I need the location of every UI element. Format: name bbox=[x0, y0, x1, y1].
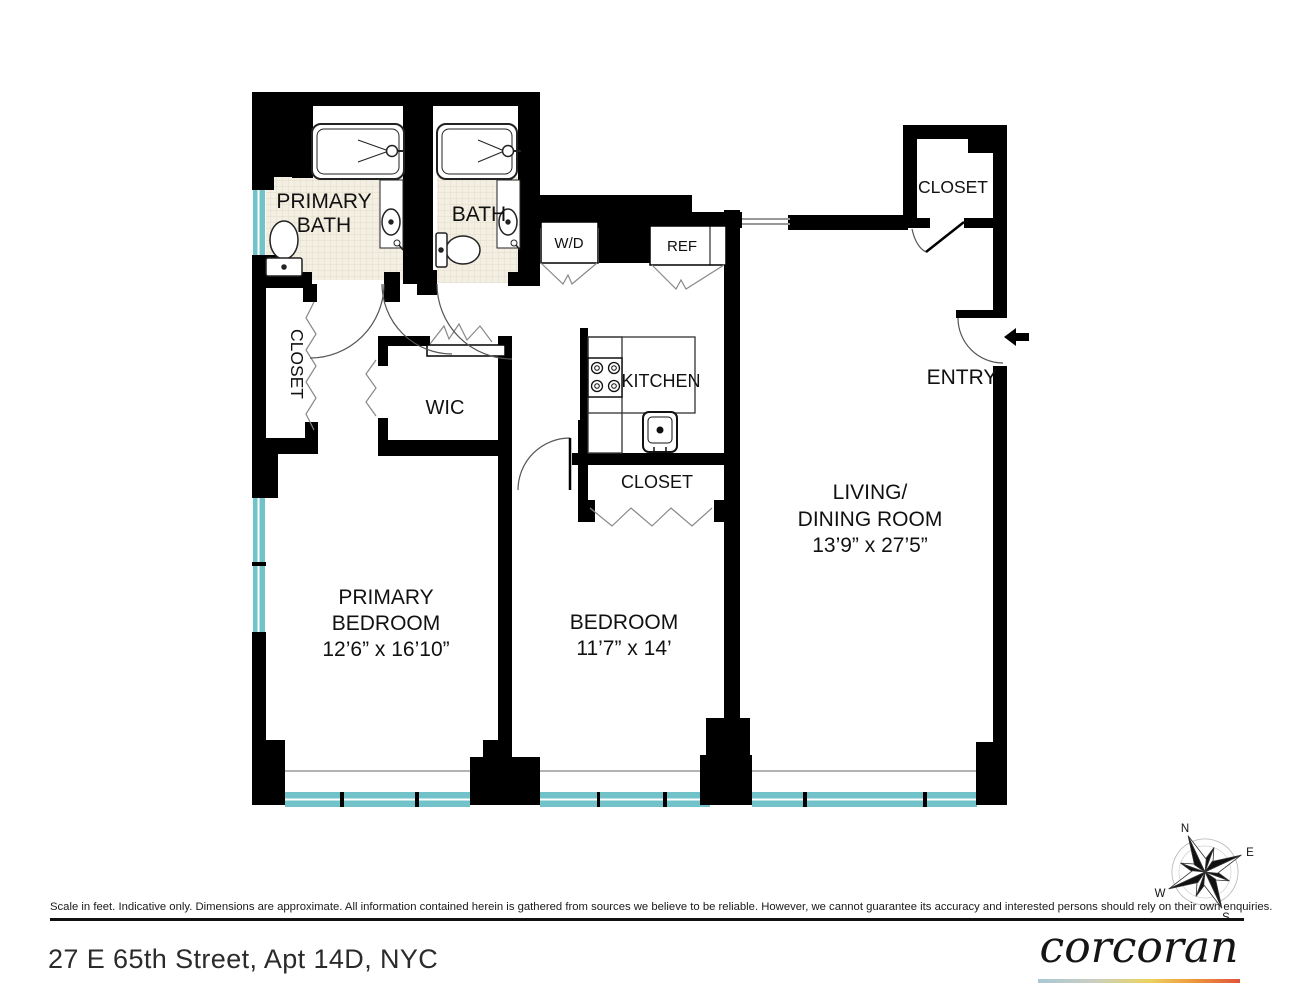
room-dims-bedroom: 11’7” x 14’ bbox=[576, 637, 671, 660]
room-dims-primary-bedroom: 12’6” x 16’10” bbox=[322, 638, 449, 661]
floorplan-svg: PRIMARY BATH BATH W/D REF CLOSET ENTRY K… bbox=[0, 0, 1294, 1000]
brand-wordmark: corcoran bbox=[1036, 926, 1242, 970]
stove bbox=[588, 358, 622, 397]
wic-closet-rod bbox=[427, 345, 505, 356]
address-text: 27 E 65th Street, Apt 14D, NYC bbox=[48, 944, 438, 975]
room-label-primary-bedroom-1: PRIMARY bbox=[338, 586, 433, 609]
room-label-primary-bath-1: PRIMARY bbox=[276, 190, 371, 213]
compass-label-n: N bbox=[1181, 823, 1189, 835]
kitchen-sink bbox=[643, 412, 677, 452]
brand-gradient-bar bbox=[1038, 979, 1240, 983]
compass-label-e: E bbox=[1246, 847, 1254, 859]
bathtub-primary bbox=[312, 124, 405, 179]
room-label-hall-closet: CLOSET bbox=[287, 329, 307, 399]
room-label-kitchen-closet: CLOSET bbox=[621, 472, 693, 492]
room-label-living-2: DINING ROOM bbox=[798, 508, 943, 531]
disclaimer-text: Scale in feet. Indicative only. Dimensio… bbox=[50, 901, 1244, 921]
room-label-bedroom: BEDROOM bbox=[570, 611, 679, 634]
brand-logo: corcoran bbox=[1036, 926, 1242, 988]
room-label-primary-bath-2: BATH bbox=[297, 214, 351, 237]
footer: Scale in feet. Indicative only. Dimensio… bbox=[50, 901, 1244, 921]
room-label-bath: BATH bbox=[452, 203, 506, 226]
bathtub-second bbox=[437, 124, 521, 179]
room-label-wic: WIC bbox=[426, 397, 465, 419]
room-label-entry-closet: CLOSET bbox=[918, 177, 988, 197]
pass-through-lines bbox=[742, 219, 790, 224]
room-label-primary-bedroom-2: BEDROOM bbox=[332, 612, 441, 635]
room-label-wd: W/D bbox=[554, 235, 583, 252]
room-label-living-1: LIVING/ bbox=[833, 481, 908, 504]
room-label-ref: REF bbox=[667, 238, 697, 255]
room-label-entry: ENTRY bbox=[927, 366, 998, 389]
toilet-second bbox=[436, 233, 480, 267]
sink-primary bbox=[380, 180, 403, 250]
room-label-kitchen: KITCHEN bbox=[621, 371, 700, 391]
room-dims-living: 13’9” x 27’5” bbox=[812, 534, 928, 557]
entry-arrow-icon bbox=[1004, 328, 1029, 346]
compass-label-w: W bbox=[1155, 888, 1166, 900]
